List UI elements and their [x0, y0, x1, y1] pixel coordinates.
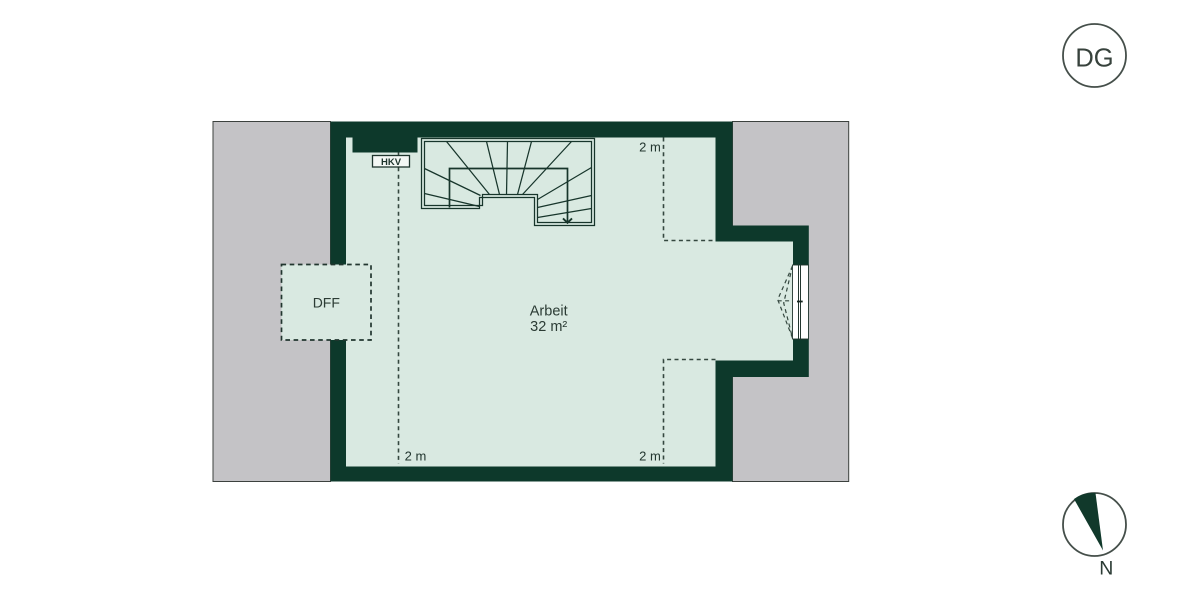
svg-text:DG: DG: [1075, 44, 1113, 72]
svg-text:2 m: 2 m: [639, 449, 661, 464]
svg-text:32 m²: 32 m²: [530, 319, 567, 335]
svg-text:HKV: HKV: [381, 157, 402, 168]
svg-text:2 m: 2 m: [405, 449, 427, 464]
svg-text:DFF: DFF: [313, 295, 340, 311]
svg-text:N: N: [1099, 557, 1113, 579]
svg-text:2 m: 2 m: [639, 140, 661, 155]
svg-text:Arbeit: Arbeit: [530, 304, 568, 320]
